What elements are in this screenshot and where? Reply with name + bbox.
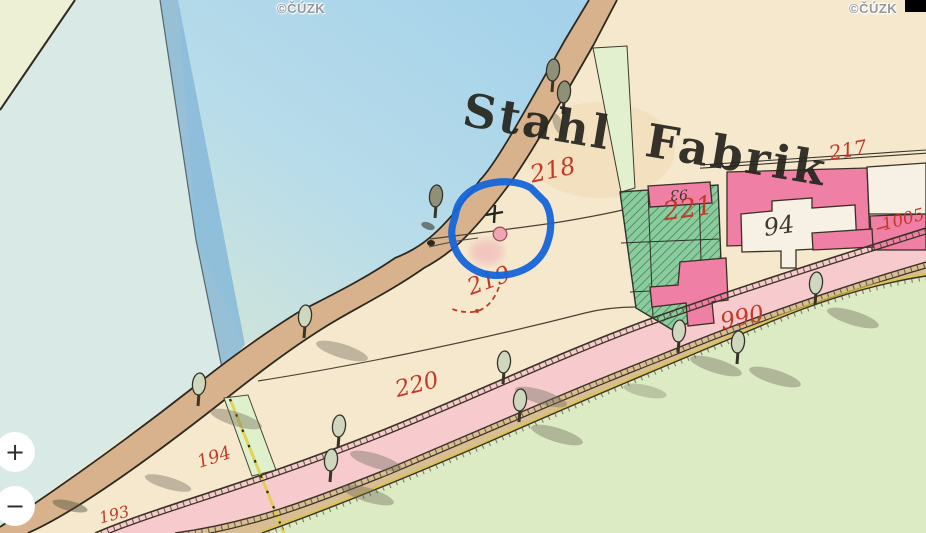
map-viewer: 218 217 221 219 220 990 1005 194 193 94 … (0, 0, 926, 533)
cuzk-watermark: ©ČÚZK (849, 1, 897, 16)
minus-icon: − (5, 492, 25, 520)
plus-icon: + (5, 438, 25, 466)
map-canvas[interactable]: 218 217 221 219 220 990 1005 194 193 94 … (0, 0, 926, 533)
cuzk-watermark: ©ČÚZK (277, 1, 325, 16)
point-symbol (493, 227, 507, 241)
boundary-stone (427, 240, 435, 246)
pink-halo (470, 239, 504, 265)
building-label-94: 94 (762, 210, 796, 242)
corner-overlay (905, 0, 926, 12)
label-219-pointer-dot (475, 309, 479, 313)
building-label-93: 93 (670, 186, 689, 203)
